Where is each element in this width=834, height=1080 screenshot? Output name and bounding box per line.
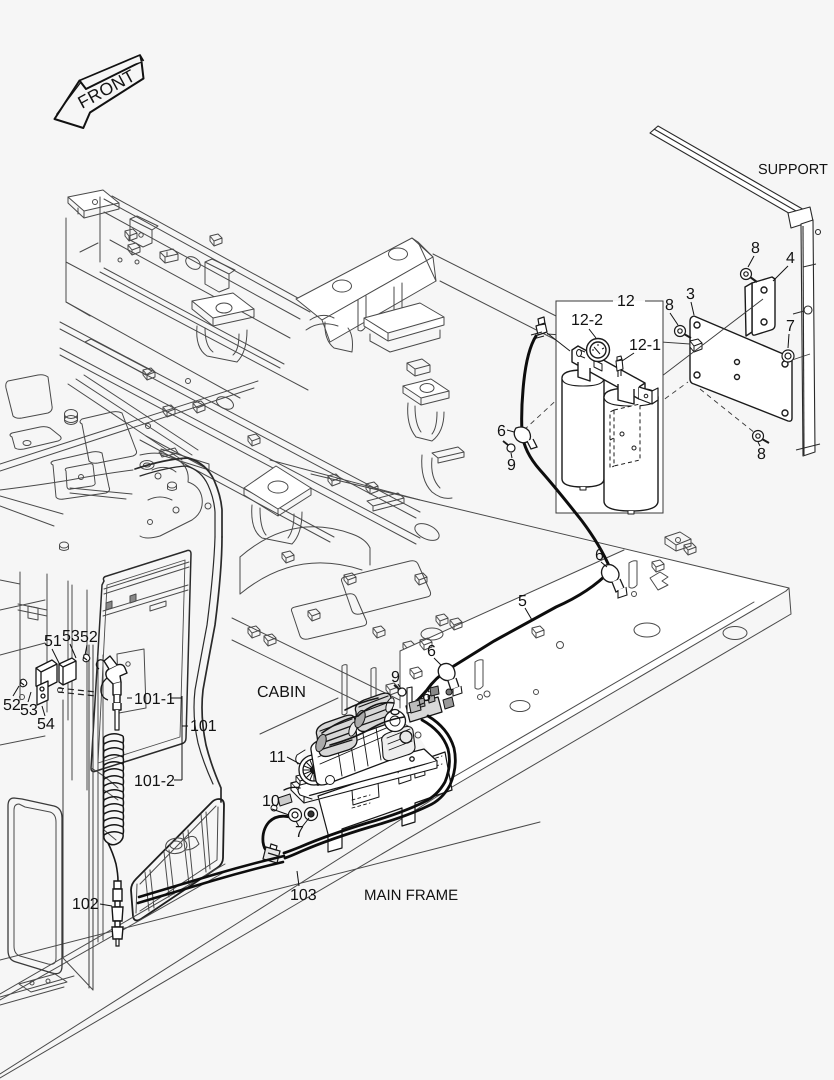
svg-text:MAIN FRAME: MAIN FRAME <box>364 887 458 904</box>
svg-text:4: 4 <box>786 250 795 267</box>
svg-text:101: 101 <box>190 718 217 735</box>
svg-text:10: 10 <box>262 793 280 810</box>
svg-text:6: 6 <box>497 423 506 440</box>
svg-text:7: 7 <box>786 318 795 335</box>
svg-text:9: 9 <box>507 457 516 474</box>
svg-text:102: 102 <box>72 896 99 913</box>
svg-text:8: 8 <box>757 446 766 463</box>
svg-text:6: 6 <box>427 643 436 660</box>
svg-text:53: 53 <box>62 628 80 645</box>
svg-text:8: 8 <box>665 297 674 314</box>
svg-text:CABIN: CABIN <box>257 684 306 701</box>
svg-text:SUPPORT: SUPPORT <box>758 162 828 178</box>
svg-text:6: 6 <box>595 547 604 564</box>
svg-text:12: 12 <box>617 293 635 310</box>
svg-text:5: 5 <box>518 593 527 610</box>
svg-text:6: 6 <box>422 688 431 705</box>
svg-text:101-2: 101-2 <box>134 773 175 790</box>
svg-text:12-1: 12-1 <box>629 337 661 354</box>
svg-text:103: 103 <box>290 887 317 904</box>
svg-text:8: 8 <box>751 240 760 257</box>
svg-text:53: 53 <box>20 702 38 719</box>
svg-text:9: 9 <box>391 669 400 686</box>
svg-text:3: 3 <box>686 286 695 303</box>
svg-text:11: 11 <box>269 749 286 766</box>
svg-text:52: 52 <box>80 629 98 646</box>
svg-text:52: 52 <box>3 697 21 714</box>
svg-text:101-1: 101-1 <box>134 691 175 708</box>
svg-text:51: 51 <box>44 633 62 650</box>
svg-text:54: 54 <box>37 716 55 733</box>
svg-text:12-2: 12-2 <box>571 312 603 329</box>
